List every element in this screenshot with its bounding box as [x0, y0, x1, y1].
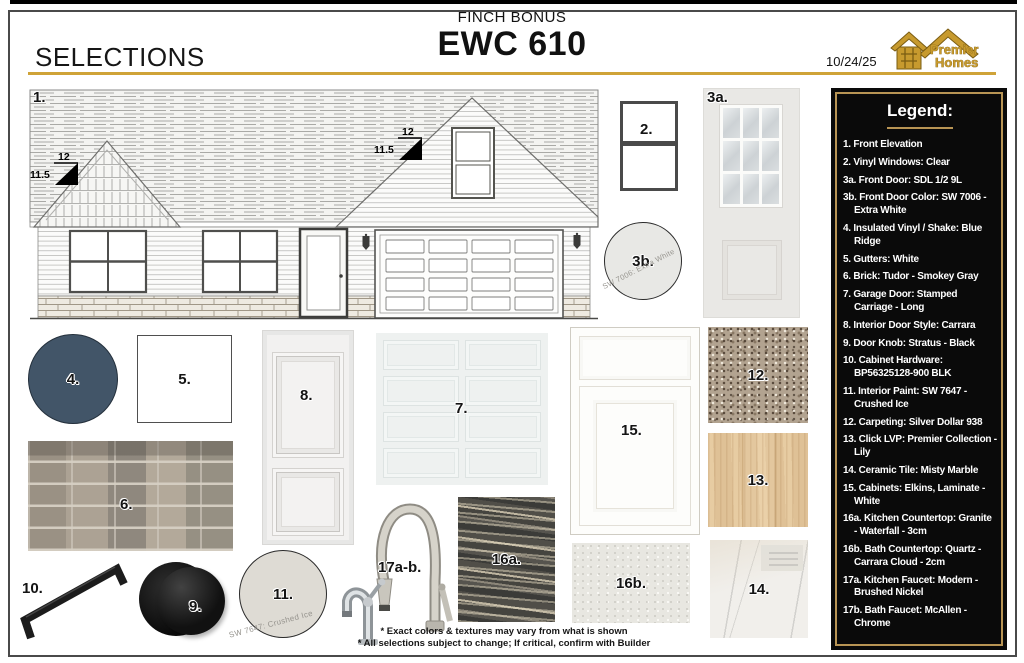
label-brick: 6. — [120, 497, 133, 512]
community-name: FINCH BONUS — [0, 9, 1024, 26]
label-gutters: 5. — [178, 372, 191, 387]
gable-window — [452, 128, 494, 198]
top-edge-bar — [10, 0, 1017, 4]
label-kitchen-countertop: 16a. — [492, 552, 521, 567]
label-interior-door: 8. — [300, 388, 313, 403]
legend-item: 11. Interior Paint: SW 7647 - Crushed Ic… — [843, 386, 997, 412]
label-garage-door: 7. — [455, 401, 468, 416]
cabinet-drawer-front — [579, 336, 691, 380]
ceramic-tile-swatch: 14. — [710, 540, 808, 638]
selection-sheet: SELECTIONS FINCH BONUS EWC 610 10/24/25 … — [0, 0, 1024, 663]
label-front-door: 3a. — [707, 90, 728, 105]
label-front-elevation: 1. — [33, 90, 46, 105]
label-door-knob: 9. — [189, 599, 202, 614]
date: 10/24/25 — [826, 54, 877, 69]
lvp-swatch: 13. — [708, 433, 808, 527]
door-knob-swatch: 9. — [135, 553, 230, 647]
interior-paint-swatch: 11. SW 7647: Crushed Ice — [239, 550, 327, 638]
front-door-color-swatch: 3b. SW 7006: Extra White — [604, 222, 682, 300]
kitchen-countertop-swatch: 16a. — [458, 497, 555, 622]
front-door-swatch: 3a. — [703, 88, 800, 318]
label-bath-countertop: 16b. — [616, 576, 646, 591]
legend-item: 9. Door Knob: Stratus - Black — [843, 338, 997, 351]
legend-list: 1. Front Elevation 2. Vinyl Windows: Cle… — [843, 139, 997, 631]
legend-underline — [887, 127, 953, 129]
middle-window — [203, 231, 277, 292]
legend-item: 10. Cabinet Hardware: BP56325128-900 BLK — [843, 355, 997, 381]
label-interior-paint: 11. — [273, 587, 293, 602]
legend-title: Legend: — [843, 101, 997, 121]
label-tile: 14. — [749, 582, 770, 597]
label-carpet: 12. — [748, 368, 769, 383]
legend-item: 2. Vinyl Windows: Clear — [843, 157, 997, 170]
label-faucets: 17a-b. — [378, 560, 421, 575]
logo-text-line2: Homes — [935, 55, 978, 70]
legend-item: 7. Garage Door: Stamped Carriage - Long — [843, 289, 997, 315]
header-divider — [28, 72, 996, 75]
tile-label-sticker — [761, 545, 803, 571]
legend-item: 6. Brick: Tudor - Smokey Gray — [843, 271, 997, 284]
legend-item: 12. Carpeting: Silver Dollar 938 — [843, 417, 997, 430]
carpet-swatch: 12. — [708, 327, 808, 423]
interior-door-panel-top — [276, 356, 340, 454]
vinyl-window-swatch: 2. — [620, 101, 678, 191]
legend-item: 1. Front Elevation — [843, 139, 997, 152]
premier-homes-logo: Premier Homes — [888, 20, 980, 76]
cabinet-hardware-pull — [15, 556, 140, 648]
cabinet-door-inner-panel — [596, 403, 674, 509]
gutters-swatch: 5. — [137, 335, 232, 423]
legend-item: 4. Insulated Vinyl / Shake: Blue Ridge — [843, 223, 997, 249]
disclaimer-notes: * Exact colors & textures may vary from … — [318, 626, 690, 650]
legend-item: 17a. Kitchen Faucet: Modern - Brushed Ni… — [843, 575, 997, 601]
garage-door-swatch: 7. — [376, 333, 548, 485]
vinyl-shake-color-swatch: 4. — [28, 334, 118, 424]
door-knob-detail — [339, 274, 343, 278]
legend-panel: Legend: 1. Front Elevation 2. Vinyl Wind… — [831, 88, 1007, 650]
interior-door-panel-bottom — [276, 472, 340, 532]
brick-swatch: 6. — [28, 441, 233, 551]
pitch-rise-label: 12 — [402, 126, 414, 138]
cabinet-door — [579, 386, 691, 526]
legend-item: 5. Gutters: White — [843, 254, 997, 267]
cabinet-swatch: 15. — [570, 327, 700, 535]
window-sash-rail — [622, 141, 676, 146]
logo-house-body — [897, 47, 921, 69]
legend-item: 3b. Front Door Color: SW 7006 - Extra Wh… — [843, 192, 997, 218]
front-elevation-drawing: 12 11.5 12 11.5 — [28, 88, 600, 320]
label-cabinets: 15. — [621, 423, 642, 438]
legend-item: 16a. Kitchen Countertop: Granite - Water… — [843, 513, 997, 539]
bath-countertop-swatch: 16b. — [572, 543, 690, 623]
door-glass-grid — [719, 104, 783, 208]
label-lvp: 13. — [748, 473, 769, 488]
left-window — [70, 231, 146, 292]
note-line: * Exact colors & textures may vary from … — [318, 626, 690, 638]
pitch-run-label: 11.5 — [30, 169, 50, 181]
label-window: 2. — [640, 122, 653, 137]
pitch-rise-label: 12 — [58, 151, 70, 163]
legend-item: 13. Click LVP: Premier Collection - Lily — [843, 434, 997, 460]
legend-item: 8. Interior Door Style: Carrara — [843, 320, 997, 333]
label-cabinet-hardware: 10. — [22, 581, 43, 596]
door-bottom-panel — [722, 240, 782, 300]
legend-item: 16b. Bath Countertop: Quartz - Carrara C… — [843, 544, 997, 570]
note-line: * All selections subject to change; If c… — [318, 638, 690, 650]
legend-item: 15. Cabinets: Elkins, Laminate - White — [843, 483, 997, 509]
pitch-run-label: 11.5 — [374, 144, 394, 156]
legend-item: 17b. Bath Faucet: McAllen - Chrome — [843, 605, 997, 631]
label-vinyl-shake: 4. — [67, 372, 80, 387]
legend-item: 14. Ceramic Tile: Misty Marble — [843, 465, 997, 478]
legend-item: 3a. Front Door: SDL 1/2 9L — [843, 175, 997, 188]
